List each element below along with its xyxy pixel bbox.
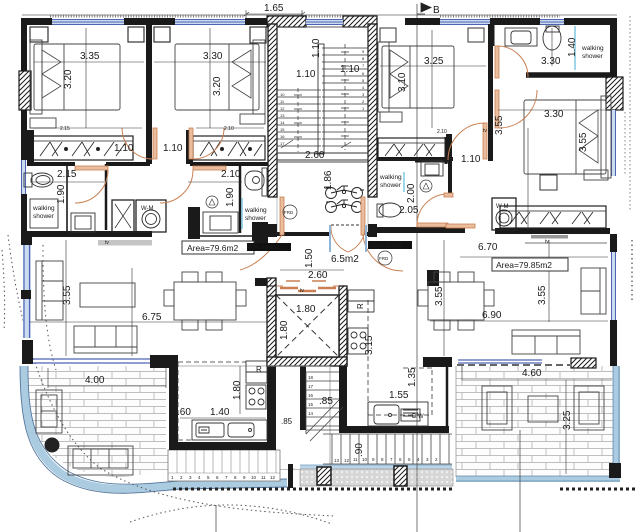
svg-text:W-M: W-M: [496, 204, 509, 210]
svg-text:1.10: 1.10: [163, 143, 183, 154]
svg-text:2.15: 2.15: [60, 126, 70, 132]
svg-text:tv: tv: [105, 240, 109, 246]
svg-text:3.10: 3.10: [397, 72, 408, 92]
svg-text:11: 11: [261, 475, 266, 480]
svg-text:shower: shower: [582, 53, 604, 60]
svg-text:1.65: 1.65: [264, 3, 284, 14]
svg-text:shower: shower: [33, 213, 55, 220]
svg-text:4.00: 4.00: [85, 375, 105, 386]
svg-text:.85: .85: [281, 417, 293, 426]
svg-text:2.60: 2.60: [308, 270, 328, 281]
svg-text:tv: tv: [545, 239, 549, 245]
svg-text:3.30: 3.30: [544, 109, 564, 120]
svg-text:17: 17: [308, 384, 314, 389]
svg-text:14: 14: [280, 120, 285, 125]
svg-text:3.25: 3.25: [424, 56, 444, 67]
svg-text:1.10: 1.10: [340, 64, 360, 75]
svg-text:3.55: 3.55: [578, 132, 589, 152]
svg-text:12: 12: [270, 475, 276, 480]
svg-text:.85: .85: [319, 396, 333, 407]
svg-text:1.86: 1.86: [323, 170, 334, 190]
svg-text:R: R: [356, 303, 365, 309]
svg-text:1.40: 1.40: [567, 37, 578, 57]
svg-text:D/W: D/W: [412, 414, 424, 420]
svg-text:13: 13: [334, 458, 340, 463]
svg-text:15: 15: [308, 402, 314, 407]
svg-text:shower: shower: [245, 215, 267, 222]
svg-text:1.40: 1.40: [210, 407, 230, 418]
svg-text:16: 16: [308, 393, 314, 398]
svg-text:3.20: 3.20: [212, 76, 223, 96]
svg-text:12: 12: [344, 458, 350, 463]
svg-text:3.55: 3.55: [434, 286, 445, 306]
svg-text:walking: walking: [581, 45, 604, 52]
svg-text:B: B: [433, 5, 440, 16]
svg-text:Area=79.85m2: Area=79.85m2: [496, 260, 552, 270]
svg-text:1.80: 1.80: [296, 304, 316, 315]
svg-text:17: 17: [280, 141, 285, 146]
svg-text:6.5m2: 6.5m2: [331, 254, 359, 265]
svg-text:walking: walking: [244, 207, 267, 214]
svg-text:6.75: 6.75: [142, 312, 162, 323]
svg-text:1.90: 1.90: [225, 187, 236, 207]
svg-text:1.10: 1.10: [311, 38, 322, 58]
svg-text:3.15: 3.15: [364, 335, 375, 355]
svg-text:3.30: 3.30: [203, 51, 223, 62]
svg-text:shower: shower: [380, 182, 402, 189]
svg-text:3.35: 3.35: [80, 51, 100, 62]
svg-text:1.80: 1.80: [232, 380, 243, 400]
svg-text:1.10: 1.10: [114, 143, 134, 154]
svg-text:1.10: 1.10: [296, 69, 316, 80]
svg-text:.60: .60: [177, 407, 191, 418]
svg-text:1.55: 1.55: [389, 390, 409, 401]
svg-text:13: 13: [280, 113, 285, 118]
svg-text:14: 14: [308, 411, 314, 416]
svg-text:2.10: 2.10: [224, 126, 234, 132]
svg-text:3.55: 3.55: [537, 285, 548, 305]
svg-text:2.10: 2.10: [437, 129, 447, 135]
svg-text:6.70: 6.70: [478, 242, 498, 253]
svg-text:4.60: 4.60: [522, 368, 542, 379]
svg-text:.90: .90: [354, 443, 365, 457]
svg-text:3.55: 3.55: [62, 285, 73, 305]
svg-text:2.60: 2.60: [305, 150, 325, 161]
svg-text:tv: tv: [483, 128, 487, 134]
svg-text:G/FLAT/401: G/FLAT/401: [249, 245, 279, 251]
svg-text:10: 10: [280, 92, 285, 97]
svg-text:1.10: 1.10: [461, 154, 481, 165]
svg-text:3.30: 3.30: [541, 56, 561, 67]
svg-text:W-M: W-M: [141, 206, 154, 212]
svg-text:2.10: 2.10: [221, 169, 241, 180]
svg-text:6.90: 6.90: [482, 310, 502, 321]
svg-text:2.05: 2.05: [399, 205, 419, 216]
svg-text:FRD: FRD: [379, 256, 389, 261]
svg-text:tv: tv: [300, 288, 304, 294]
svg-text:R: R: [256, 365, 262, 374]
svg-text:16: 16: [280, 134, 285, 139]
svg-text:2.00: 2.00: [406, 183, 417, 203]
svg-text:3.20: 3.20: [63, 69, 74, 89]
svg-text:1.35: 1.35: [407, 367, 418, 387]
svg-text:walking: walking: [32, 205, 55, 212]
svg-text:FRD: FRD: [284, 210, 294, 215]
svg-text:1.50: 1.50: [304, 248, 315, 268]
svg-text:3.55: 3.55: [494, 115, 505, 135]
svg-text:10: 10: [251, 475, 257, 480]
svg-text:NF/FLAT/402: NF/FLAT/402: [370, 243, 403, 249]
svg-text:1.80: 1.80: [279, 320, 290, 340]
svg-text:12: 12: [280, 106, 285, 111]
svg-text:18: 18: [308, 375, 314, 380]
svg-text:walking: walking: [379, 174, 402, 181]
svg-text:2.15: 2.15: [57, 169, 77, 180]
svg-text:Area=79.6m2: Area=79.6m2: [187, 243, 239, 253]
svg-text:15: 15: [280, 127, 285, 132]
svg-text:1.90: 1.90: [56, 184, 67, 204]
svg-text:3.25: 3.25: [562, 410, 573, 430]
